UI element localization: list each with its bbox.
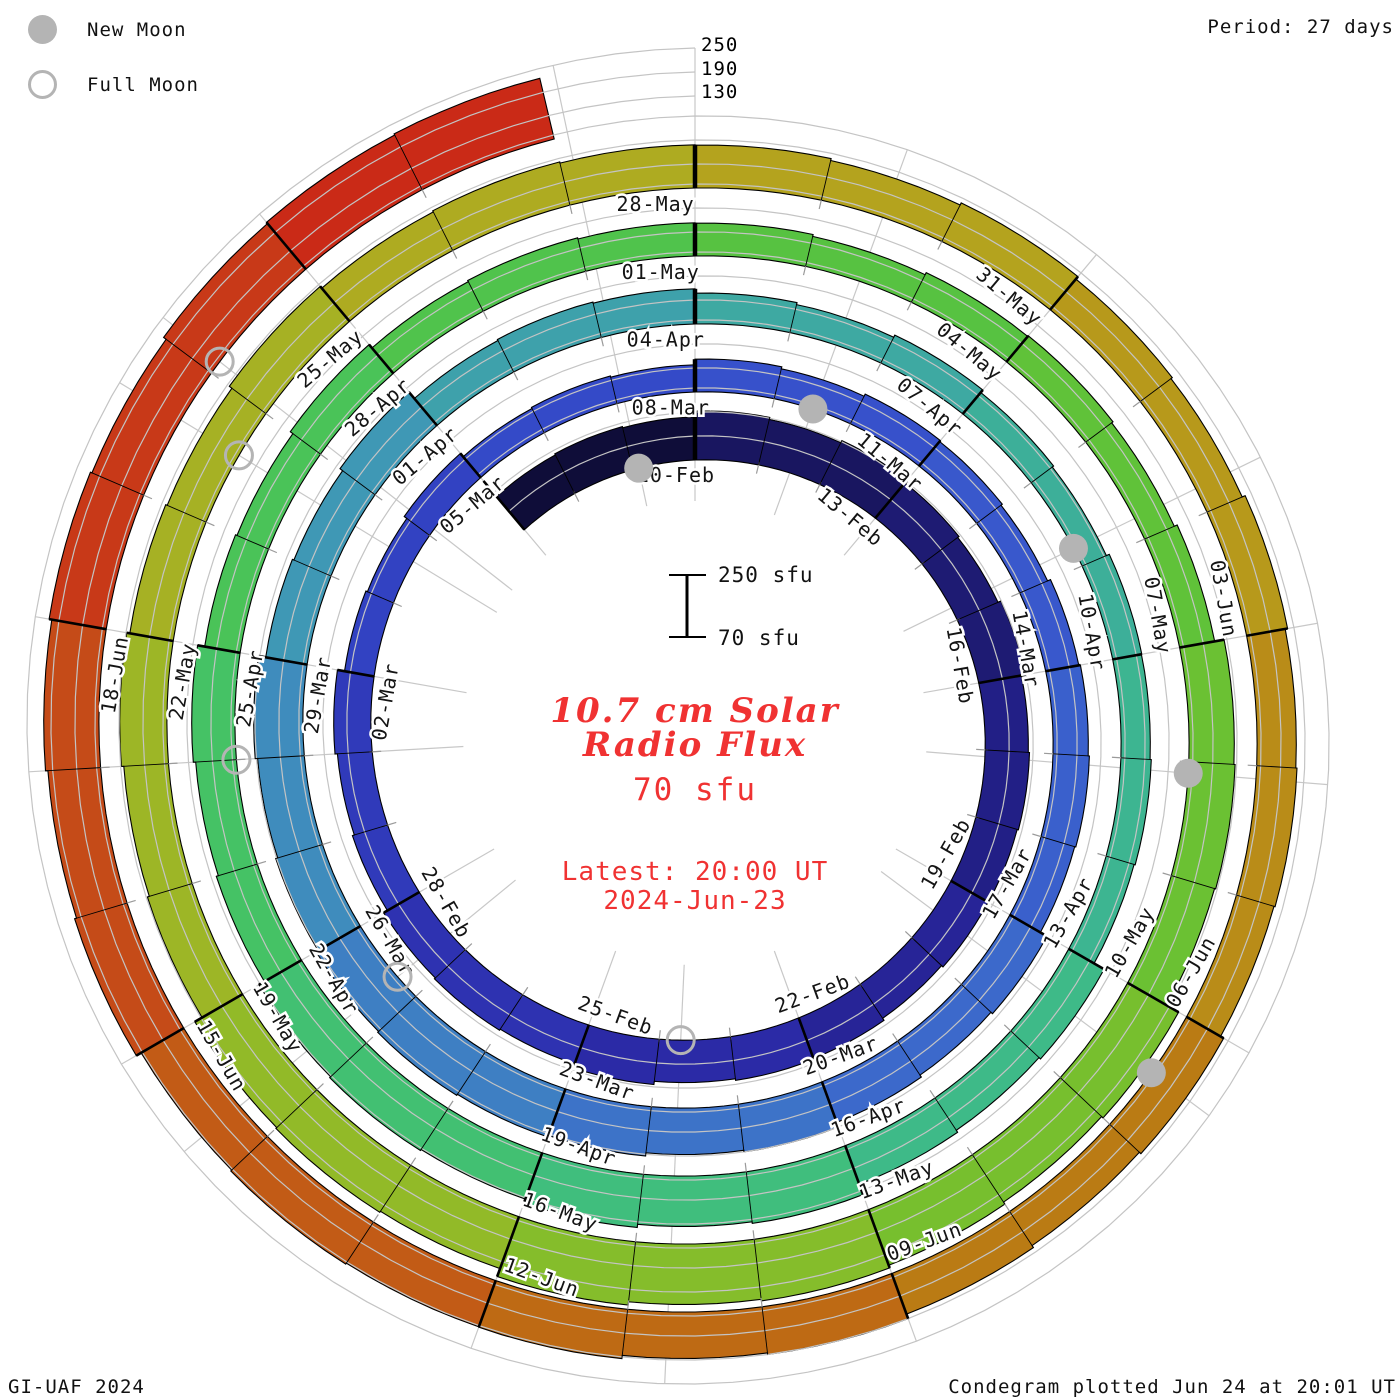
scale-bar-bottom-label: 70 sfu xyxy=(718,626,800,650)
chart-title: 10.7 cm Solar Radio Flux 70 sfu xyxy=(395,694,995,808)
flux-band-06-Jun xyxy=(892,1017,1224,1314)
radial-axis-label-250: 250 xyxy=(701,34,738,56)
new-moon-icon xyxy=(28,15,57,44)
legend-new-moon: New Moon xyxy=(28,15,187,44)
latest-line1: Latest: 20:00 UT xyxy=(395,858,995,887)
date-label-08-Mar: 08-Mar xyxy=(632,395,710,419)
chart-title-line2: Radio Flux xyxy=(395,728,995,762)
scale-bar-top-label: 250 sfu xyxy=(718,563,814,587)
new-moon-label: New Moon xyxy=(87,19,187,41)
new-moon-marker-06-Jun xyxy=(1137,1058,1166,1087)
new-moon-marker-08-Apr xyxy=(1059,534,1088,563)
period-label: Period: 27 days xyxy=(1207,16,1394,38)
date-label-01-May: 01-May xyxy=(622,260,700,284)
flux-floor-label: 70 sfu xyxy=(395,772,995,808)
date-label-04-Apr: 04-Apr xyxy=(627,328,705,352)
full-moon-label: Full Moon xyxy=(87,74,199,96)
legend-full-moon: Full Moon xyxy=(28,70,199,99)
new-moon-marker-10-Mar xyxy=(798,395,827,424)
date-label-28-May: 28-May xyxy=(616,192,694,216)
latest-reading: Latest: 20:00 UT 2024-Jun-23 xyxy=(395,858,995,916)
full-moon-icon xyxy=(28,70,57,99)
new-moon-marker-09-Feb xyxy=(624,454,653,483)
radial-axis-label-130: 130 xyxy=(701,81,738,103)
new-moon-marker-08-May xyxy=(1174,759,1203,788)
radial-axis-label-190: 190 xyxy=(701,58,738,80)
chart-title-line1: 10.7 cm Solar xyxy=(395,694,995,728)
plotted-timestamp: Condegram plotted Jun 24 at 20:01 UT xyxy=(948,1376,1396,1398)
credit-label: GI-UAF 2024 xyxy=(8,1376,145,1398)
latest-line2: 2024-Jun-23 xyxy=(395,887,995,916)
condegram-page: 10-Feb13-Feb16-Feb19-Feb22-Feb25-Feb28-F… xyxy=(0,0,1400,1400)
